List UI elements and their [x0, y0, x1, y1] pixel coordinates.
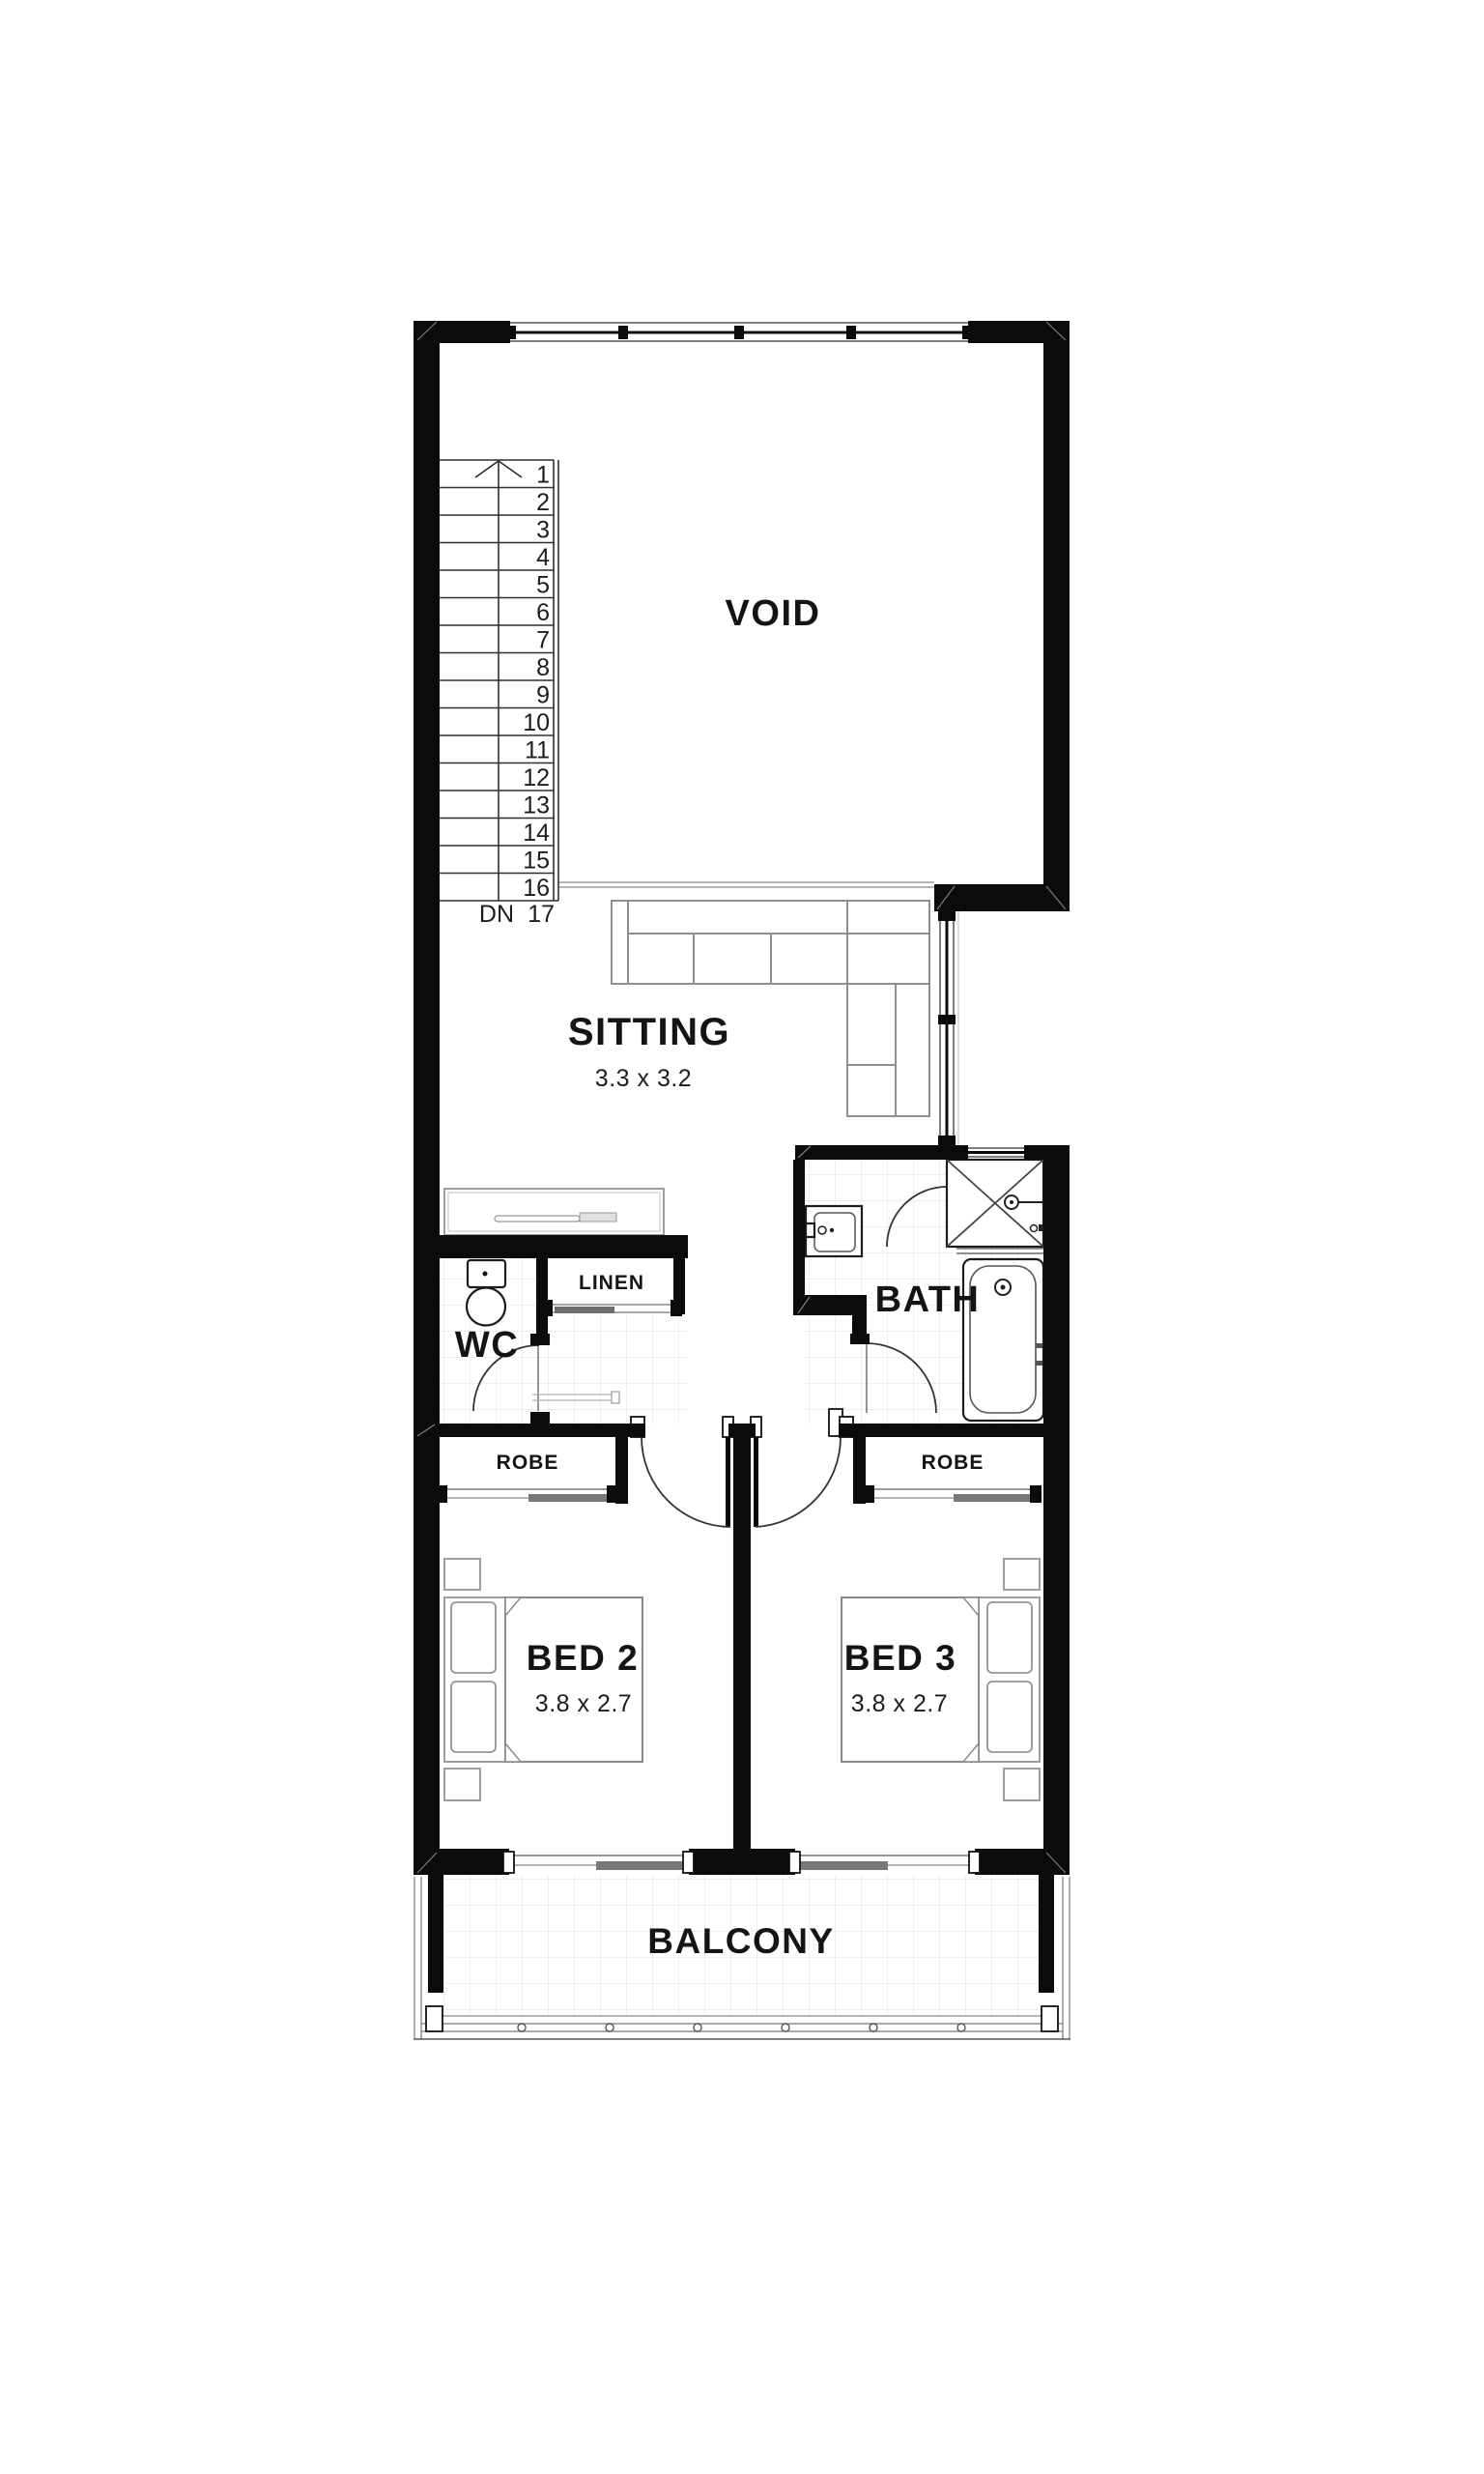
- bed3-nightstand-bottom: [1004, 1769, 1040, 1800]
- stair-step-number: 7: [536, 627, 550, 654]
- stair-step-number: 12: [523, 764, 550, 791]
- bed3-dims: 3.8 x 2.7: [851, 1690, 948, 1717]
- stair-numbers: 12345678910111213141516: [523, 462, 550, 903]
- bed2-dims: 3.8 x 2.7: [535, 1690, 632, 1717]
- linen-label: LINEN: [579, 1272, 644, 1294]
- sitting-label: SITTING: [568, 1011, 730, 1053]
- left-exterior-wall: [414, 321, 440, 1875]
- dresser: [444, 1189, 664, 1235]
- bed2-nightstand-bottom: [444, 1769, 480, 1800]
- wc-label: WC: [455, 1325, 519, 1366]
- sitting-dims: 3.3 x 3.2: [595, 1065, 692, 1092]
- bed3-label: BED 3: [844, 1638, 956, 1678]
- bed2-label: BED 2: [527, 1638, 639, 1678]
- bed2-nightstand-top: [444, 1559, 480, 1590]
- balcony-label: BALCONY: [647, 1921, 834, 1961]
- stair-step-number: 10: [523, 709, 550, 736]
- bathtub: [956, 1249, 1043, 1421]
- stair-landing-number: 17: [528, 901, 555, 928]
- stair-step-number: 5: [536, 572, 550, 599]
- wc-east-wall: [536, 1258, 548, 1336]
- robe-bed2-sliding-door: [437, 1485, 618, 1503]
- void-label: VOID: [726, 593, 821, 634]
- stair-step-number: 16: [523, 875, 550, 902]
- stair-step-number: 2: [536, 489, 550, 516]
- bed2-furniture: [444, 1559, 642, 1800]
- hall-floor-tiles: [548, 1314, 688, 1424]
- south-wall-center: [689, 1849, 795, 1875]
- wc-linen-north-wall: [440, 1235, 688, 1258]
- staircase: 12345678910111213141516 DN 17: [440, 460, 558, 928]
- robe-bed3-label: ROBE: [922, 1452, 985, 1474]
- right-exterior-wall-lower: [1043, 1145, 1070, 1875]
- stair-step-number: 6: [536, 599, 550, 626]
- toilet: [467, 1260, 505, 1326]
- bed2-door: [631, 1417, 733, 1527]
- void-floor-edge-line: [558, 882, 934, 887]
- linen-sliding-door: [541, 1300, 682, 1316]
- bed2-pillow: [451, 1682, 496, 1752]
- bed3-pillow: [987, 1682, 1032, 1752]
- bath-north-wall: [795, 1145, 968, 1160]
- stair-step-number: 15: [523, 848, 550, 875]
- balcony-post-right: [1042, 2006, 1058, 2031]
- sitting-window: [938, 911, 958, 1145]
- right-exterior-wall-upper: [1043, 321, 1070, 911]
- bath-west-wall: [793, 1160, 805, 1307]
- robe-bed3-sliding-door: [863, 1485, 1042, 1503]
- stair-step-number: 4: [536, 544, 550, 571]
- bed2-blanket: [505, 1597, 642, 1762]
- stair-step-number: 8: [536, 654, 550, 681]
- robe-bed2-east-wall: [615, 1437, 628, 1504]
- bath-vanity: [806, 1206, 862, 1256]
- floor-plan-drawing: 12345678910111213141516 DN 17: [0, 0, 1484, 2474]
- robe-bed3-west-wall: [853, 1437, 866, 1504]
- bath-window: [968, 1148, 1024, 1157]
- stair-step-number: 13: [523, 792, 550, 820]
- stair-step-number: 3: [536, 517, 550, 544]
- linen-east-wall: [673, 1258, 685, 1314]
- bath-label: BATH: [875, 1280, 981, 1320]
- bed3-nightstand-top: [1004, 1559, 1040, 1590]
- balcony-post-left: [426, 2006, 442, 2031]
- hall-bedroom-wall: [414, 1424, 634, 1437]
- inter-bedroom-wall: [733, 1437, 751, 1849]
- bed3-furniture: [842, 1559, 1040, 1800]
- stair-step-number: 11: [525, 737, 550, 764]
- stair-step-number: 9: [536, 682, 550, 709]
- stair-down-label: DN: [479, 901, 514, 928]
- void-notch-wall: [934, 884, 1070, 911]
- stair-step-number: 1: [536, 462, 550, 489]
- bed3-pillow: [987, 1602, 1032, 1673]
- top-window: [510, 323, 968, 341]
- balcony-east-stub: [1039, 1875, 1054, 1993]
- bed2-pillow: [451, 1602, 496, 1673]
- balcony-west-stub: [428, 1875, 443, 1993]
- robe-bed2-label: ROBE: [497, 1452, 559, 1474]
- bath-south-wall: [848, 1424, 1070, 1437]
- stair-step-number: 14: [523, 820, 550, 847]
- bed3-blanket: [842, 1597, 979, 1762]
- floor-plan-page: 12345678910111213141516 DN 17: [0, 0, 1484, 2474]
